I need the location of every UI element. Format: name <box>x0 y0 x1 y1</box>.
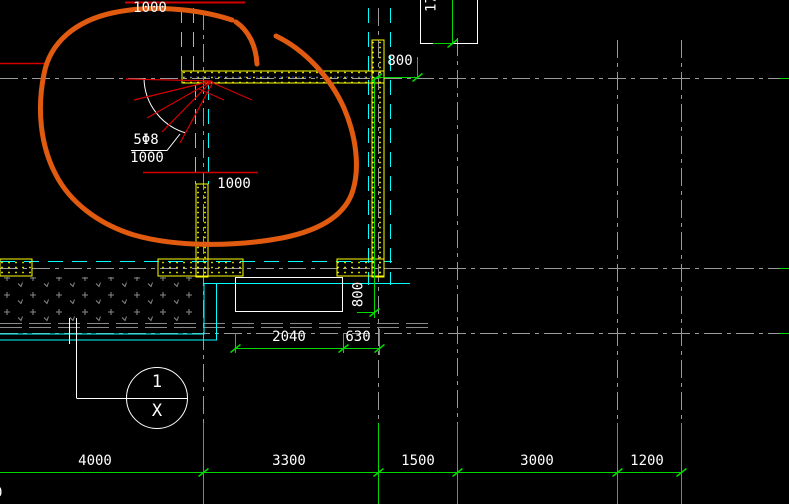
white-outlines <box>70 0 478 429</box>
dim-630: 630 <box>339 330 377 345</box>
grid-dim-1200: 1200 <box>623 454 671 469</box>
grid-lines <box>0 8 789 423</box>
dim-2040: 2040 <box>264 330 314 345</box>
rebar-callout-label: 5Φ8 <box>129 133 163 148</box>
cad-canvas[interactable]: 1000 5Φ8 1000 1000 800 17 800 2040 630 1… <box>0 0 789 504</box>
grid-dim-3300: 3300 <box>265 454 313 469</box>
dim-800-top: 800 <box>384 54 416 69</box>
drawing-graphics <box>0 0 789 504</box>
callout-detail-number: 1 <box>147 373 167 391</box>
callout-sheet-ref: X <box>147 402 167 420</box>
grid-dim-4000: 4000 <box>71 454 119 469</box>
slab-edge-lines <box>0 324 430 328</box>
rebar-spacing-label: 1000 <box>127 151 167 166</box>
dim-top-1000: 1000 <box>128 1 172 16</box>
grid-dim-partial-left: 0 <box>0 486 6 501</box>
dimension-ticks <box>199 40 687 477</box>
dim-mid-1000: 1000 <box>214 177 254 192</box>
grid-dim-1500: 1500 <box>394 454 442 469</box>
dim-800-pit: 800 <box>352 280 367 310</box>
dim-17-partial: 17 <box>425 0 440 22</box>
slab-hatch <box>0 277 196 322</box>
dimension-lines <box>0 0 789 504</box>
grid-dim-3000: 3000 <box>513 454 561 469</box>
